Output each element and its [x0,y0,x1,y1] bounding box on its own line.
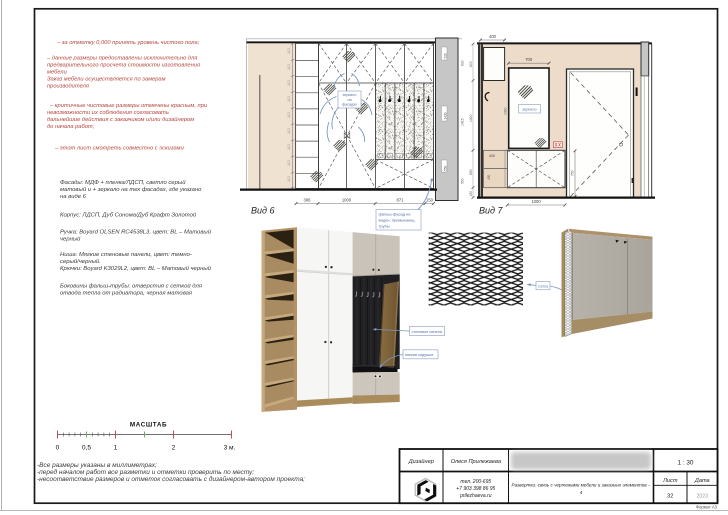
svg-text:4: 4 [580,490,583,495]
svg-text:зеркало: зеркало [343,93,357,97]
svg-text:мягкая сидушка: мягкая сидушка [405,353,434,357]
svg-text:520: 520 [443,53,447,59]
svg-text:112: 112 [287,128,291,134]
svg-text:фальш-фасад не: фальш-фасад не [379,211,412,216]
svg-text:700: 700 [525,57,533,62]
svg-text:750: 750 [571,170,575,176]
svg-text:фасадах: фасадах [342,102,357,106]
svg-text:Формат А3: Формат А3 [696,505,718,510]
svg-text:на виде 6: на виде 6 [60,194,87,200]
svg-text:тел. 200-695: тел. 200-695 [460,479,491,485]
svg-text:Ручка: Boyard OLSEN RC4538L3,: Ручка: Boyard OLSEN RC4538L3, цвет: BL –… [60,229,212,236]
svg-text:невозможности их соблюдения со: невозможности их соблюдения согласовать [47,110,169,116]
svg-text:предварительного просчета стои: предварительного просчета стоимости изго… [47,63,200,69]
svg-text:1430: 1430 [443,112,447,119]
svg-text:Развертки: связь с чертежами м: Развертки: связь с чертежами мебели и за… [512,483,651,488]
svg-text:– этот лист смотреть совместно: – этот лист смотреть совместно с эскизам… [54,146,185,152]
svg-text:Вид 7: Вид 7 [479,206,503,216]
svg-text:1000: 1000 [531,199,541,204]
svg-text:производителя: производителя [47,84,89,90]
svg-text:112: 112 [287,48,291,54]
svg-text:112: 112 [287,144,291,150]
svg-text:Вид 6: Вид 6 [251,206,275,216]
svg-text:112: 112 [287,64,291,70]
svg-text:Заказ мебели осуществляется по: Заказ мебели осуществляется по замерам [47,77,166,83]
svg-text:+7 903 398 86 95: +7 903 398 86 95 [456,486,495,492]
svg-text:-перед началом работ все разме: -перед началом работ все разметки и отме… [37,468,254,476]
svg-text:150: 150 [426,198,434,203]
svg-text:400: 400 [489,154,495,158]
svg-text:1 : 30: 1 : 30 [678,459,694,466]
svg-text:2023: 2023 [697,494,709,500]
svg-text:Сетка: Сетка [538,284,549,288]
svg-text:Дата: Дата [694,478,710,484]
svg-text:дальнейшие действия с заказчик: дальнейшие действия с заказчиком и/или д… [47,116,194,123]
svg-text:отвода тепла от радиатора, чер: отвода тепла от радиатора, черная матова… [60,291,193,297]
svg-text:трубы: трубы [379,223,390,228]
svg-text:112: 112 [287,160,291,166]
svg-text:1000: 1000 [342,198,352,203]
svg-text:-несоответствие размеров и отм: -несоответствие размеров и отметок согла… [37,475,305,483]
svg-text:зеркало: зеркало [522,107,536,111]
svg-text:1430: 1430 [503,107,507,115]
svg-text:черный: черный [60,236,81,243]
svg-text:32: 32 [667,494,673,500]
svg-text:1400: 1400 [469,114,473,122]
svg-text:матовый и + зеркало на тех фас: матовый и + зеркало на тех фасадах, где … [60,186,202,193]
svg-text:prilezhaeva.ru: prilezhaeva.ru [459,493,492,499]
svg-text:мебели: мебели [47,70,68,76]
svg-text:Дизайнер: Дизайнер [408,458,434,465]
svg-text:-Все размеры указаны в миллиме: -Все размеры указаны в миллиметрах; [37,462,157,469]
svg-text:Фасады: МДФ + пленка/ЛДСП, све: Фасады: МДФ + пленка/ЛДСП, светло серый [60,179,186,186]
svg-text:– за отметку 0,000 принять уро: – за отметку 0,000 принять уровень чисто… [56,40,200,46]
svg-text:МАСШТАБ: МАСШТАБ [130,422,167,429]
svg-text:0: 0 [56,445,60,452]
svg-text:стеновые панели: стеновые панели [412,330,442,334]
svg-text:Лист: Лист [662,478,678,484]
svg-text:871: 871 [397,198,405,203]
svg-text:600: 600 [469,61,473,67]
svg-text:0,5: 0,5 [82,445,91,452]
svg-text:Боковины фальш-трубы: отверсти: Боковины фальш-трубы: отверстия с сеткой… [60,283,203,290]
svg-text:1415: 1415 [461,118,465,126]
svg-text:386: 386 [304,198,312,203]
svg-text:112: 112 [287,96,291,102]
svg-text:550: 550 [443,165,447,171]
svg-text:– данные размеры предоставлены: – данные размеры предоставлены исключите… [46,56,197,62]
svg-text:400: 400 [489,34,497,39]
svg-text:550: 550 [461,178,465,184]
svg-text:виден, примыкающ.: виден, примыкающ. [379,217,416,222]
svg-text:150: 150 [469,191,473,197]
svg-text:450: 450 [487,174,491,180]
svg-text:серый/черный.: серый/черный. [60,258,101,265]
svg-text:630: 630 [461,60,465,66]
svg-text:– критичные чистовые размеры о: – критичные чистовые размеры отмечены кр… [49,103,208,109]
svg-text:650: 650 [469,169,473,175]
svg-text:112: 112 [287,176,291,182]
svg-text:112: 112 [287,80,291,86]
svg-text:Корпус: ЛДСП, Дуб Сонома/Дуб К: Корпус: ЛДСП, Дуб Сонома/Дуб Крафт Золот… [60,212,197,219]
svg-text:до начала работ;: до начала работ; [47,124,95,130]
svg-text:2: 2 [172,445,176,452]
svg-text:112: 112 [287,112,291,118]
svg-text:Ниша: Мягкие стеновые панели,: Ниша: Мягкие стеновые панели, цвет: темн… [60,252,192,258]
svg-text:Крючки: Boyard K3029L2, цвет:: Крючки: Boyard K3029L2, цвет: BL – Матов… [60,265,212,272]
svg-text:1: 1 [114,445,118,452]
svg-text:3 м.: 3 м. [224,445,236,452]
svg-text:Олеся Прилежаева: Олеся Прилежаева [451,459,501,465]
